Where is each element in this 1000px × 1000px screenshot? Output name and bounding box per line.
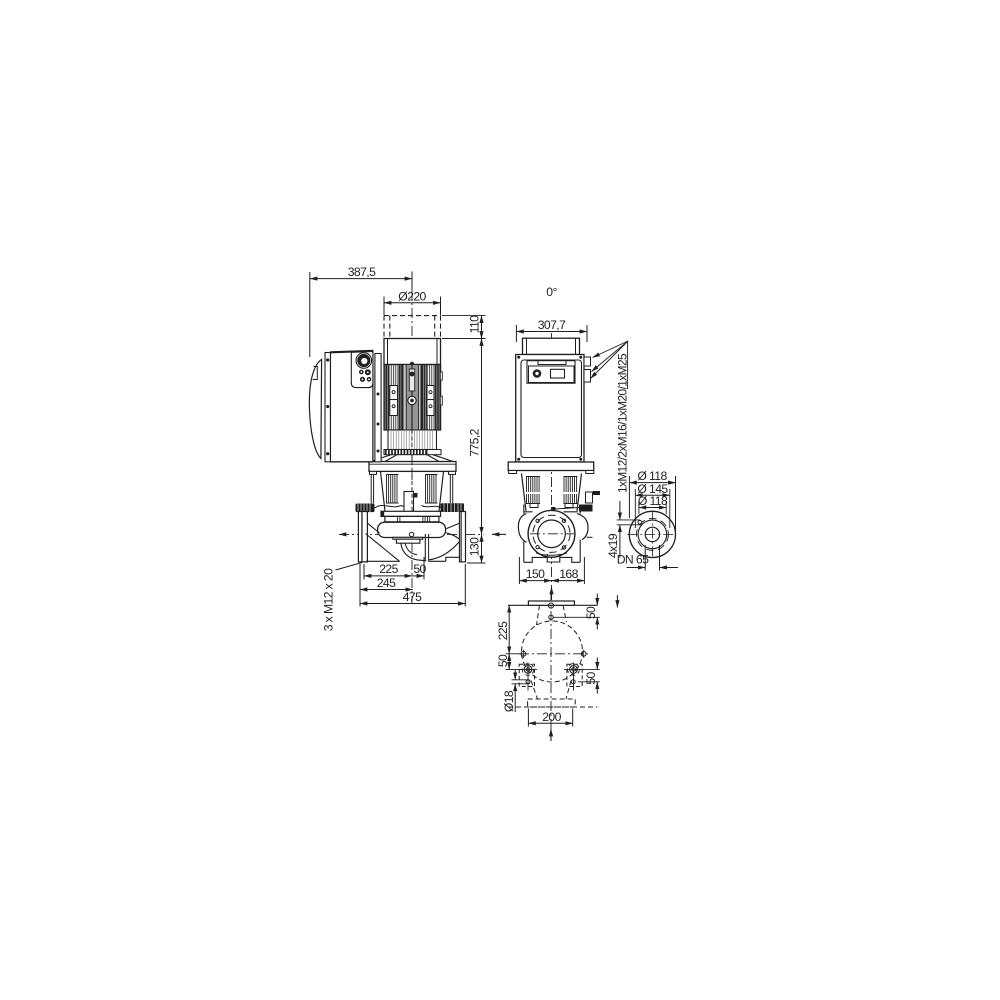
svg-text:225: 225 (496, 621, 510, 640)
svg-text:50: 50 (584, 672, 598, 685)
svg-text:110: 110 (468, 315, 482, 333)
svg-text:50: 50 (584, 606, 598, 619)
svg-text:0°: 0° (546, 285, 557, 299)
svg-text:387,5: 387,5 (348, 265, 376, 279)
svg-text:475: 475 (403, 590, 422, 604)
svg-text:50: 50 (496, 654, 510, 667)
svg-text:Ø18: Ø18 (502, 690, 516, 712)
svg-text:307,7: 307,7 (538, 318, 566, 332)
svg-text:245: 245 (377, 576, 396, 590)
svg-text:3 x M12 x 20: 3 x M12 x 20 (322, 568, 336, 631)
svg-text:168: 168 (559, 567, 578, 581)
svg-text:Ø 118: Ø 118 (638, 494, 668, 508)
svg-text:1xM12/2xM16/1xM20/1xM25: 1xM12/2xM16/1xM20/1xM25 (616, 353, 630, 493)
svg-text:225: 225 (379, 562, 398, 576)
svg-text:50: 50 (413, 562, 426, 576)
svg-text:DN 65: DN 65 (617, 553, 649, 567)
svg-text:130: 130 (468, 537, 482, 556)
svg-text:775,2: 775,2 (468, 428, 482, 456)
svg-text:200: 200 (542, 710, 561, 724)
svg-text:150: 150 (526, 567, 545, 581)
svg-text:Ø220: Ø220 (398, 290, 426, 304)
